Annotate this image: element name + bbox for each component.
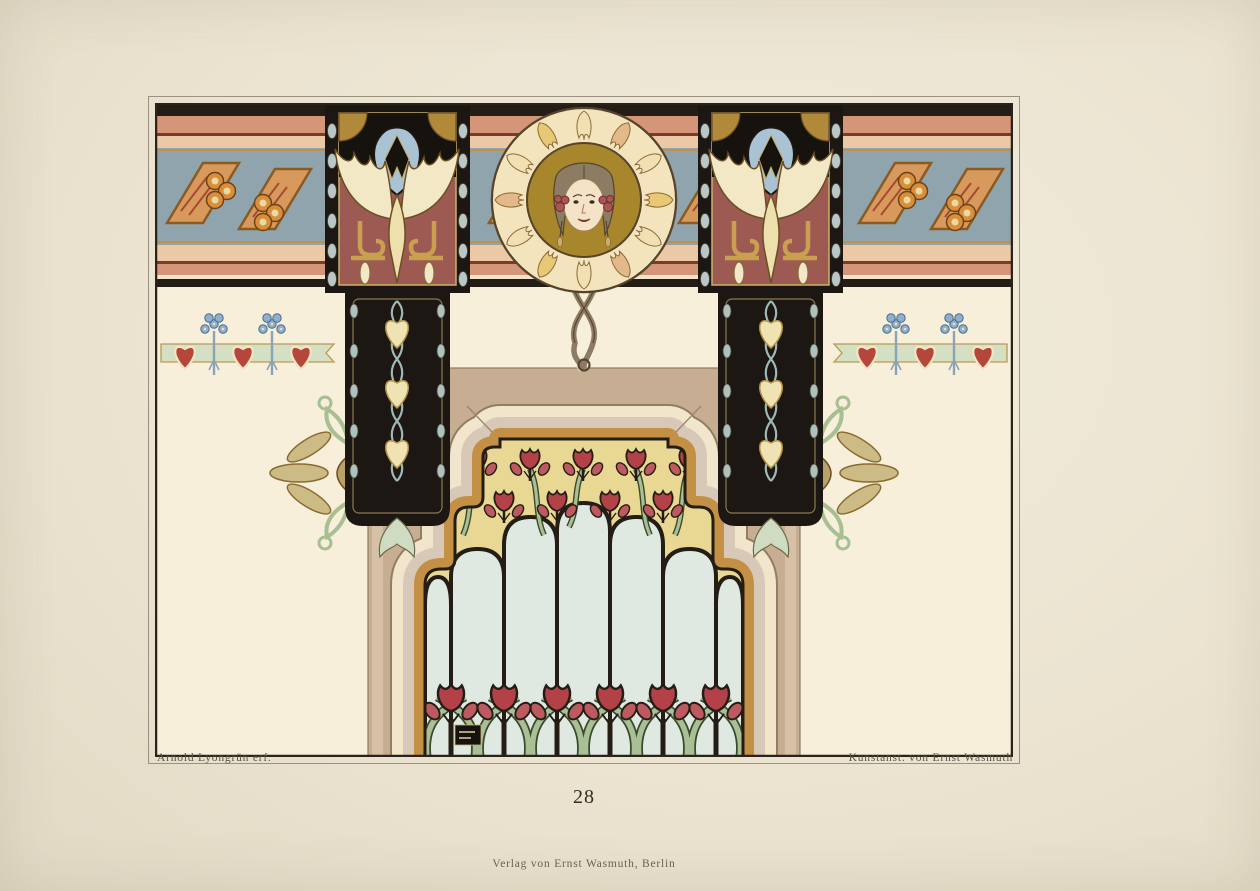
scanned-book-page: Arnold Lyongrün erf. Kunstanst. von Erns… bbox=[0, 0, 1260, 891]
caption-artist: Arnold Lyongrün erf. bbox=[157, 752, 272, 764]
caption-printer: Kunstanst. von Ernst Wasmuth bbox=[849, 752, 1013, 764]
caption-artist-text: Arnold Lyongrün erf. bbox=[157, 752, 272, 764]
caption-printer-text: Kunstanst. von Ernst Wasmuth bbox=[849, 752, 1013, 764]
artist-monogram bbox=[455, 725, 481, 745]
artwork-plate bbox=[155, 103, 1013, 757]
plate-number: 28 bbox=[155, 786, 1013, 809]
publisher-imprint: Verlag von Ernst Wasmuth, Berlin bbox=[155, 858, 1013, 870]
